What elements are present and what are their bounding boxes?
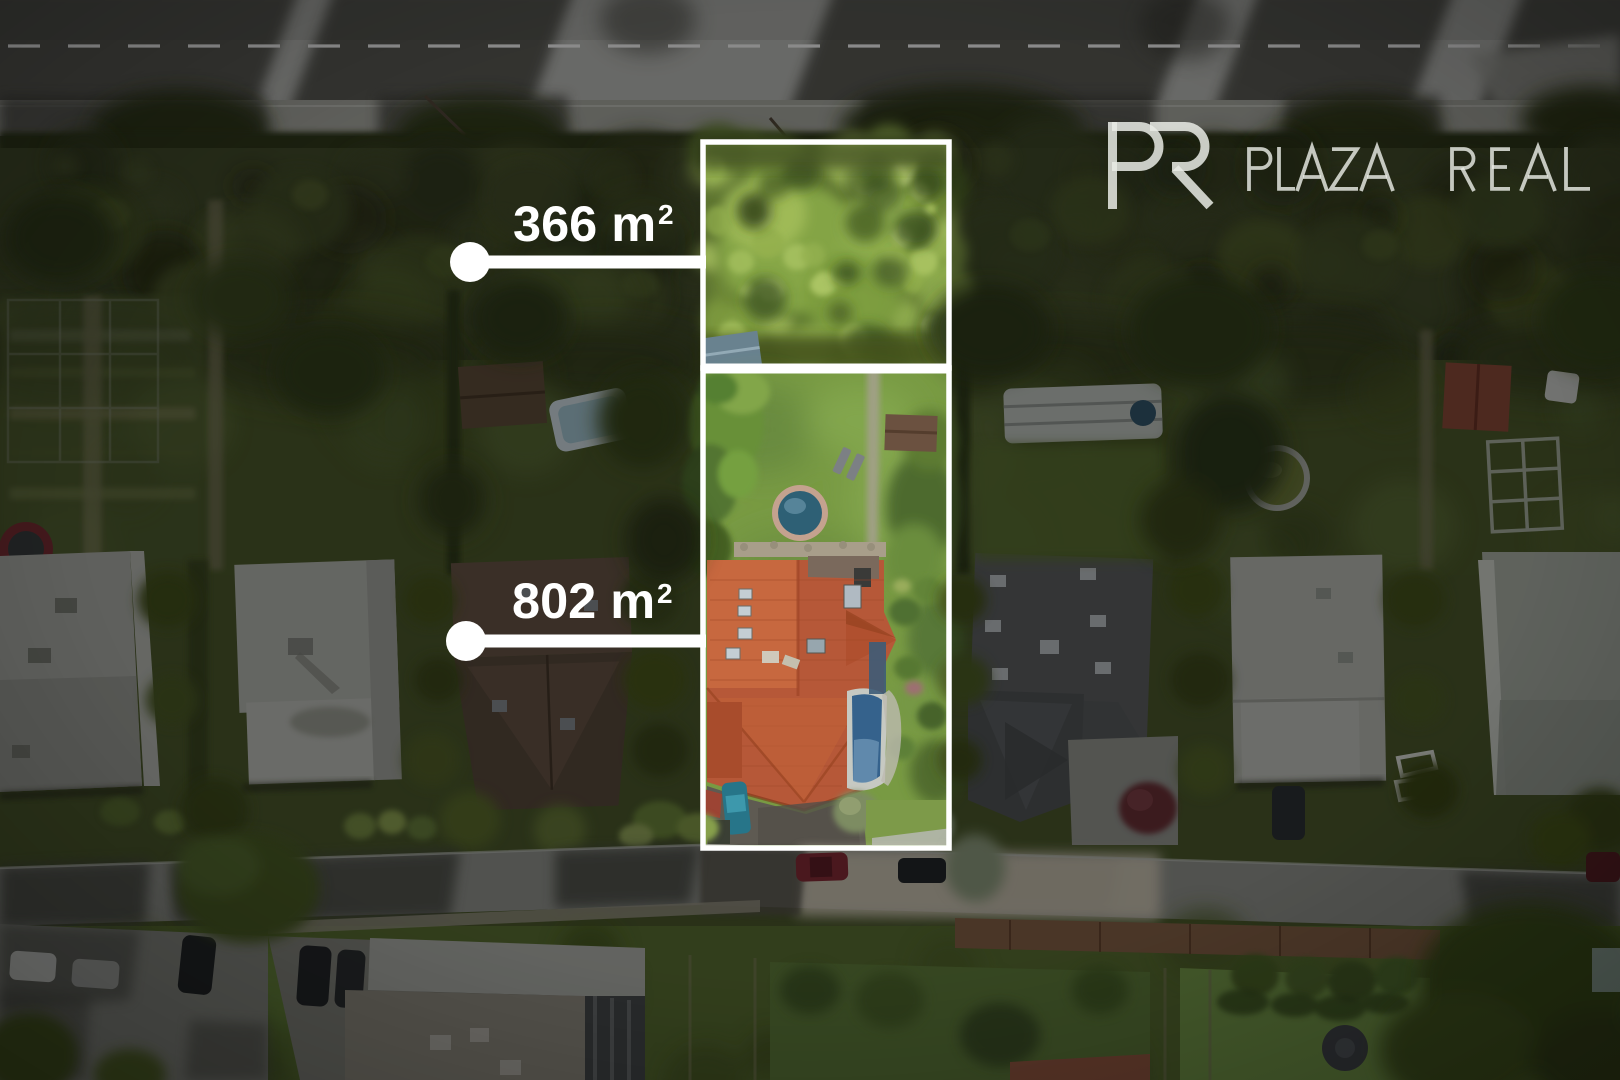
svg-text:2: 2 bbox=[657, 578, 673, 609]
svg-text:2: 2 bbox=[658, 199, 674, 230]
svg-text:366 m: 366 m bbox=[513, 195, 656, 252]
svg-text:802 m: 802 m bbox=[512, 572, 655, 629]
